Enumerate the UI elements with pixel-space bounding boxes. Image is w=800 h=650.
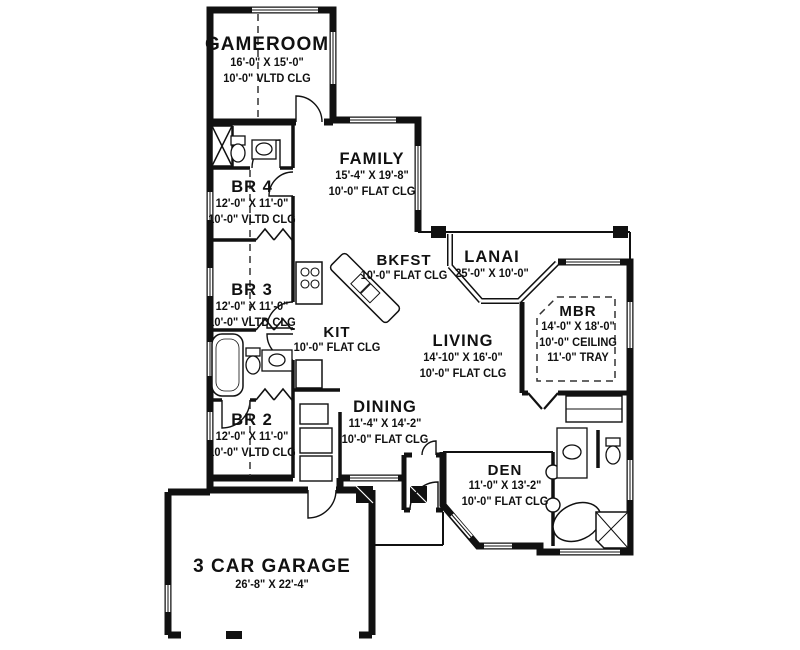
glass-walls bbox=[450, 234, 557, 301]
toilet-1 bbox=[231, 136, 245, 162]
closet-bifold-doors bbox=[256, 229, 292, 400]
master-toilet bbox=[606, 438, 620, 464]
master-closet bbox=[566, 396, 622, 422]
refrigerator bbox=[296, 360, 322, 388]
mbr-tray-outline bbox=[537, 297, 615, 381]
kitchen-island bbox=[329, 252, 401, 324]
floor-plan: GAMEROOM 16'-0" X 15'-0"10'-0" VLTD CLG … bbox=[0, 0, 800, 650]
floor-plan-drawing bbox=[0, 0, 800, 650]
master-vanity bbox=[557, 428, 587, 478]
sink-1 bbox=[252, 140, 276, 159]
kitchen-counter bbox=[296, 262, 322, 388]
linen-closet bbox=[212, 126, 232, 166]
laundry bbox=[300, 404, 332, 481]
exterior-walls bbox=[168, 10, 630, 635]
master-shower bbox=[596, 512, 628, 548]
toilet-2 bbox=[246, 348, 260, 374]
vanity-2 bbox=[262, 350, 292, 371]
bathtub bbox=[212, 334, 243, 396]
